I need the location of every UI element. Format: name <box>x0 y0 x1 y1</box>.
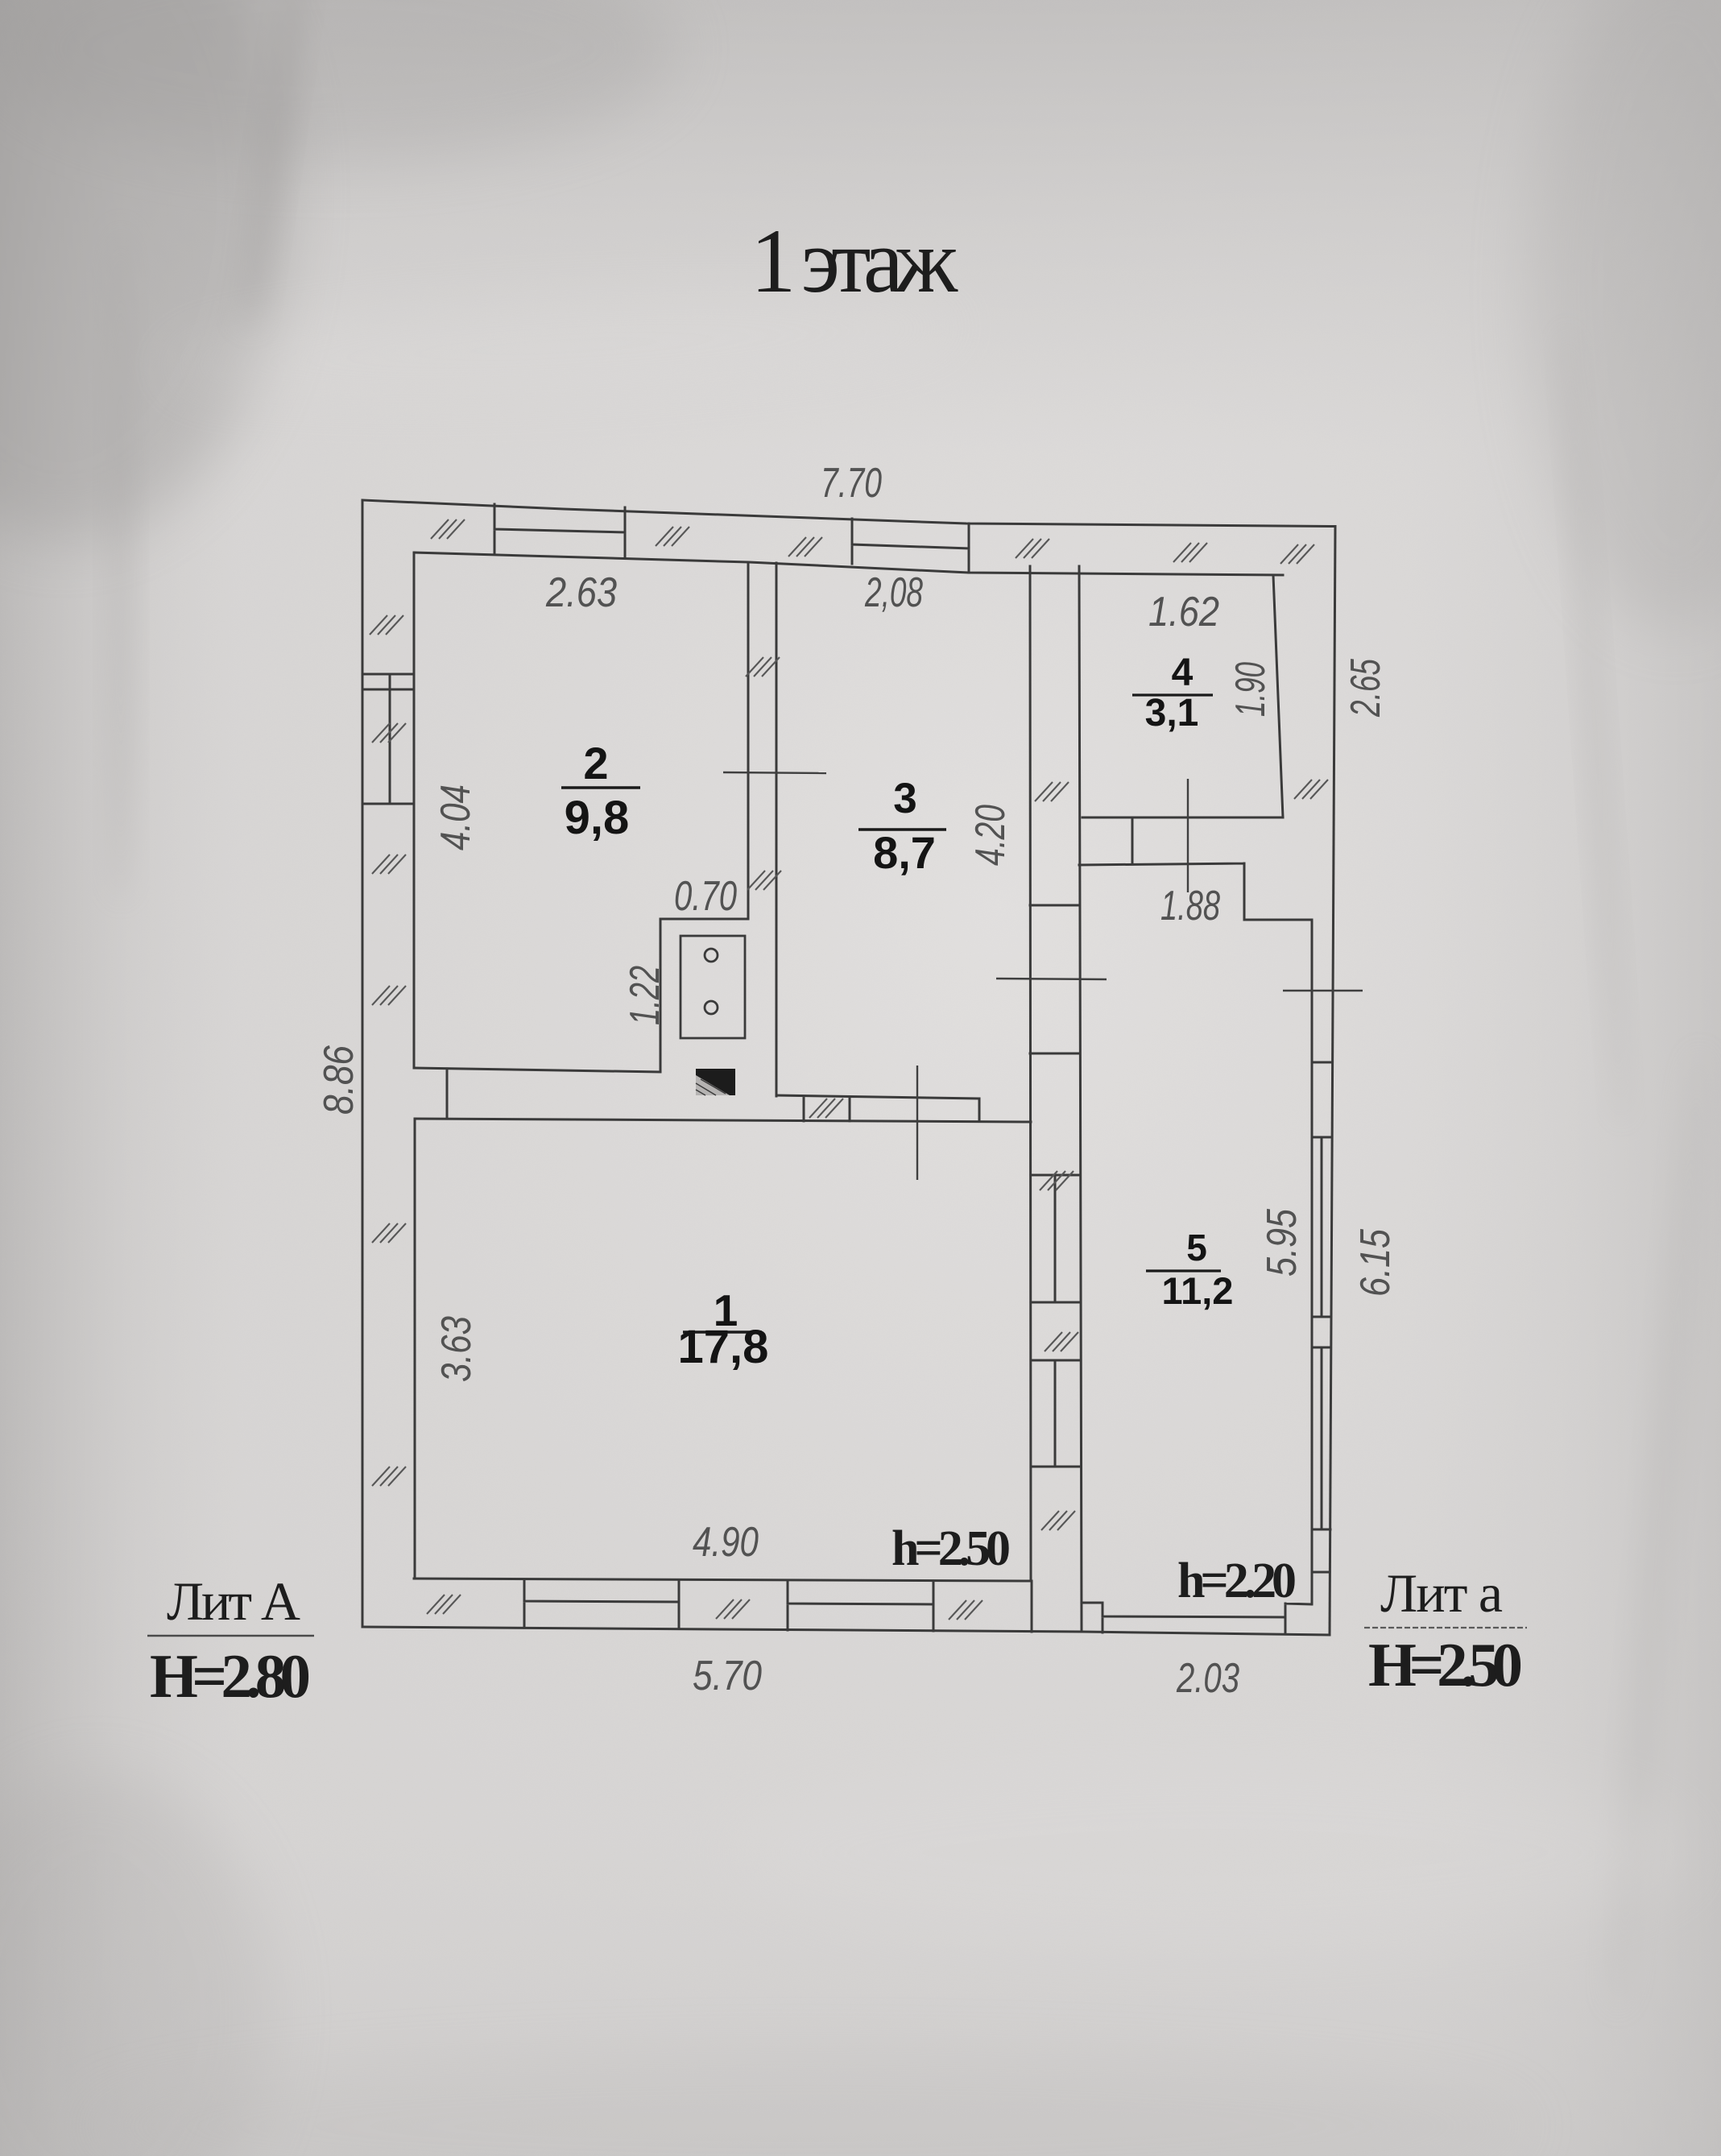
svg-text:5.70: 5.70 <box>693 1653 762 1699</box>
svg-text:1 этаж: 1 этаж <box>751 211 958 312</box>
svg-text:1.90: 1.90 <box>1227 662 1274 717</box>
svg-text:17,8: 17,8 <box>678 1321 769 1373</box>
svg-text:5: 5 <box>1186 1227 1207 1268</box>
svg-text:Лит А: Лит А <box>167 1570 300 1632</box>
svg-text:2,08: 2,08 <box>864 569 923 616</box>
svg-text:1.88: 1.88 <box>1160 883 1220 929</box>
svg-text:2: 2 <box>583 738 608 788</box>
svg-text:4.04: 4.04 <box>432 784 479 850</box>
svg-text:1.22: 1.22 <box>622 966 668 1025</box>
svg-text:8.86: 8.86 <box>316 1045 362 1115</box>
svg-text:0.70: 0.70 <box>674 873 737 920</box>
svg-text:4.90: 4.90 <box>693 1519 759 1566</box>
svg-text:2.63: 2.63 <box>545 569 617 616</box>
svg-text:3,1: 3,1 <box>1145 692 1199 735</box>
svg-text:6.15: 6.15 <box>1352 1228 1399 1297</box>
svg-text:11,2: 11,2 <box>1162 1269 1234 1312</box>
svg-text:Н=2.80: Н=2.80 <box>150 1641 311 1711</box>
svg-text:2.03: 2.03 <box>1176 1655 1239 1702</box>
svg-text:2.65: 2.65 <box>1342 658 1389 717</box>
svg-text:7.70: 7.70 <box>821 460 882 507</box>
svg-text:1.62: 1.62 <box>1148 589 1219 635</box>
svg-text:4.20: 4.20 <box>967 805 1014 866</box>
svg-text:h=2.20: h=2.20 <box>1177 1554 1297 1608</box>
svg-text:h=2.50: h=2.50 <box>892 1521 1011 1576</box>
svg-text:9,8: 9,8 <box>565 792 630 844</box>
svg-text:5.95: 5.95 <box>1259 1208 1305 1277</box>
svg-text:Лит а: Лит а <box>1380 1562 1503 1624</box>
svg-text:3.63: 3.63 <box>433 1316 480 1382</box>
svg-text:8,7: 8,7 <box>873 827 936 878</box>
svg-text:4: 4 <box>1172 652 1194 694</box>
svg-text:Н=2.50: Н=2.50 <box>1368 1630 1523 1699</box>
svg-text:3: 3 <box>893 775 916 822</box>
